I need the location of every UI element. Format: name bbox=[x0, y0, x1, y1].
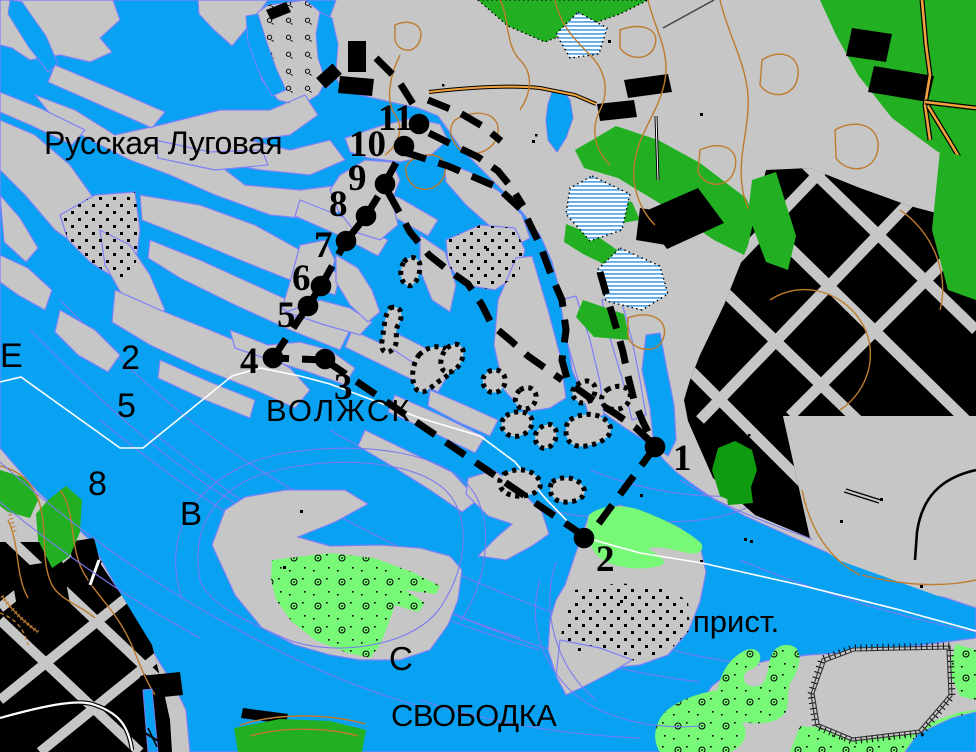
svg-text:Русская Луговая: Русская Луговая bbox=[44, 125, 282, 161]
svg-text:4: 4 bbox=[240, 341, 259, 382]
svg-text:Е: Е bbox=[0, 337, 23, 375]
svg-text:5: 5 bbox=[277, 295, 296, 336]
svg-text:5: 5 bbox=[117, 387, 136, 425]
svg-text:СВОБОДКА: СВОБОДКА bbox=[391, 698, 557, 733]
svg-text:С: С bbox=[389, 640, 413, 677]
svg-text:6: 6 bbox=[292, 258, 311, 299]
svg-text:3: 3 bbox=[334, 367, 353, 408]
svg-text:прист.: прист. bbox=[693, 604, 779, 639]
svg-text:11: 11 bbox=[378, 98, 413, 139]
svg-text:В: В bbox=[180, 495, 202, 532]
svg-text:8: 8 bbox=[88, 465, 107, 503]
svg-text:2: 2 bbox=[596, 539, 615, 580]
svg-text:1: 1 bbox=[673, 438, 692, 479]
svg-text:8: 8 bbox=[329, 184, 348, 225]
svg-text:2: 2 bbox=[121, 339, 140, 377]
svg-text:7: 7 bbox=[314, 225, 333, 266]
